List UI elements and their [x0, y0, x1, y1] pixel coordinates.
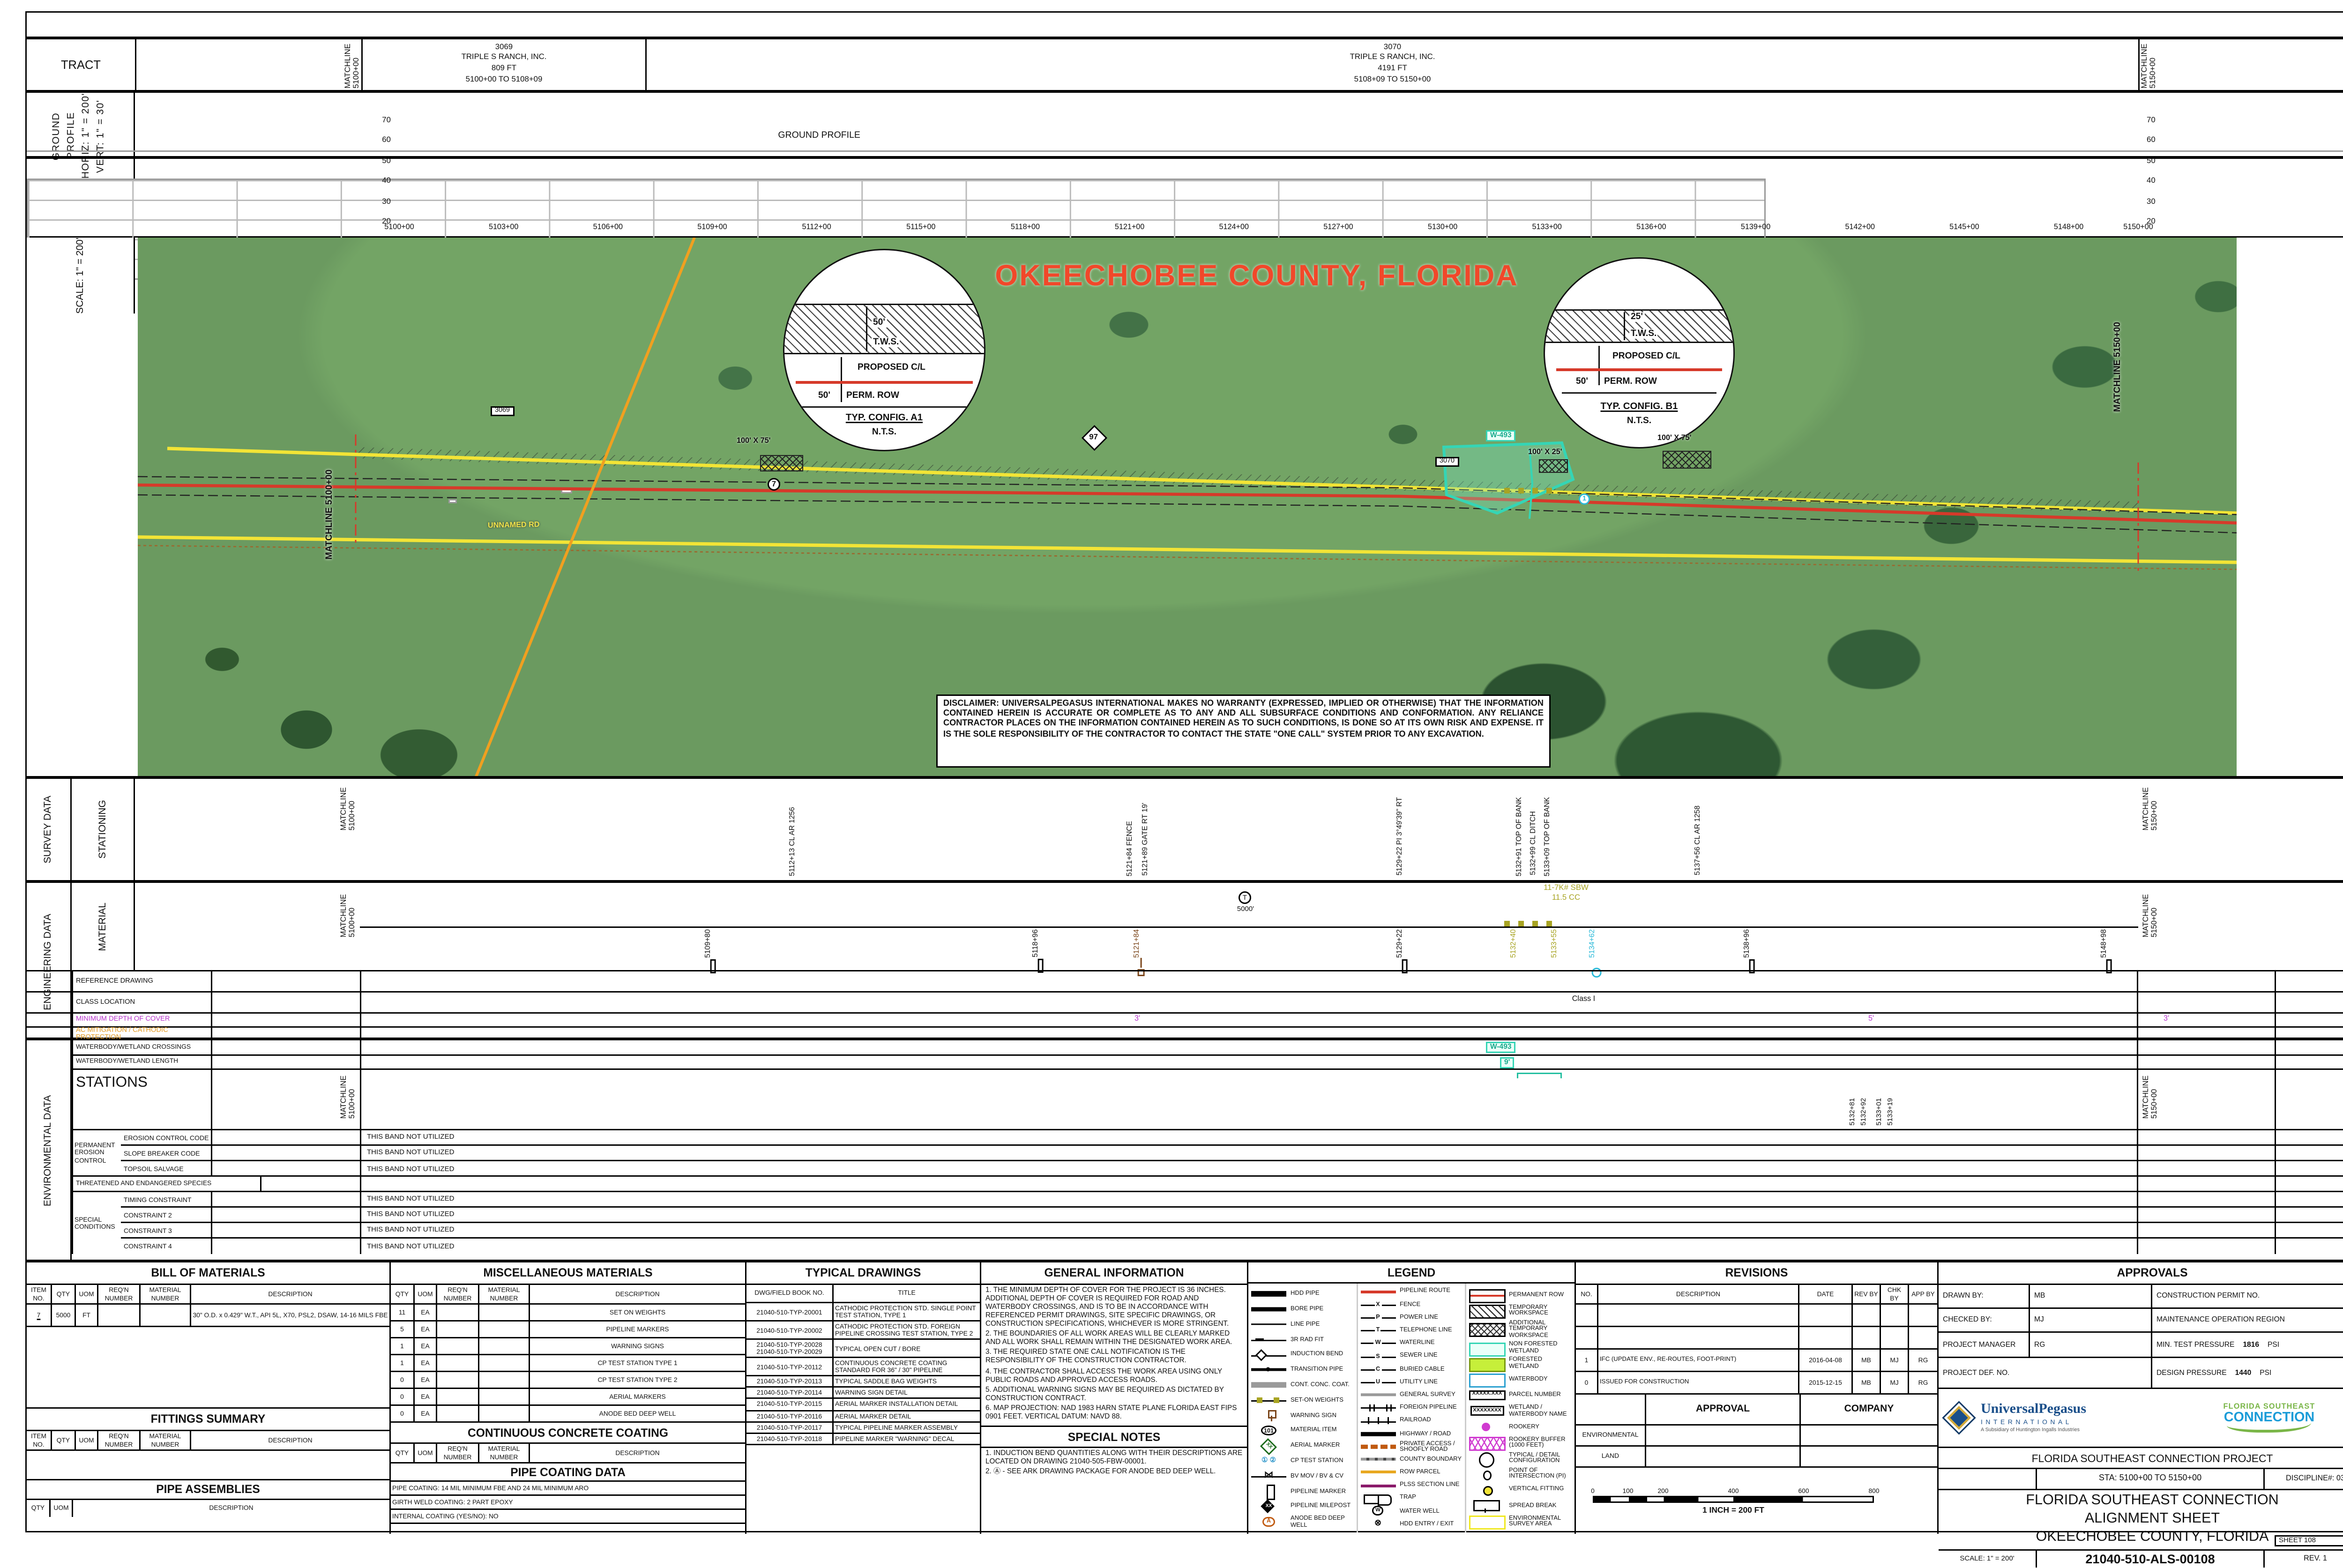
- station-tick: 5109+00: [697, 224, 727, 232]
- cp-test-station-icon: ① ②: [1250, 1455, 1288, 1467]
- y-tick: 40: [2147, 178, 2156, 186]
- atws-patch: [1663, 451, 1711, 468]
- material-station-label: 5138+96: [1745, 929, 1752, 958]
- legend-item: INDUCTION BEND: [1250, 1348, 1355, 1361]
- wetland-crossings-row: WATERBODY/WETLAND CROSSINGS W-493: [72, 1040, 2343, 1056]
- concrete-coating-title: CONTINUOUS CONCRETE COATING: [391, 1423, 745, 1444]
- note: 3. THE REQUIRED STATE ONE CALL NOTIFICAT…: [985, 1350, 1243, 1366]
- dimension-line: [841, 357, 842, 402]
- set-on-weights-marks: [1504, 921, 1558, 926]
- warning-sign-icon: [1250, 1409, 1288, 1422]
- atws-patch: [761, 455, 803, 471]
- scale-bar-graphic: [1593, 1496, 1874, 1503]
- approvals-title: APPROVALS: [1939, 1262, 2343, 1285]
- bv-valve-icon: ⋈: [1250, 1470, 1288, 1483]
- parcel-number-icon: XXXXX.XXX: [1468, 1389, 1506, 1401]
- material-item-7-marker: 7: [768, 478, 780, 491]
- environmental-approval-row: ENVIRONMENTAL: [1576, 1426, 1646, 1445]
- profile-x-axis: 5100+005103+005106+005109+005112+005115+…: [399, 224, 2138, 238]
- fence-line-icon: X: [1359, 1298, 1397, 1311]
- tract-number: 3069: [363, 44, 645, 54]
- legend-item: TEMPORARY WORKSPACE: [1468, 1304, 1573, 1316]
- station-tick: 5142+00: [1845, 224, 1875, 232]
- miscellaneous-materials: MISCELLANEOUS MATERIALS QTY UOM REQ'N NU…: [391, 1262, 746, 1534]
- power-line-icon: P: [1359, 1311, 1397, 1324]
- material-item-icon: 101: [1250, 1424, 1288, 1437]
- environmental-data-band: ENVIRONMENTAL DATA WATERBODY/WETLAND CRO…: [27, 1040, 2343, 1262]
- pipe-coating-row: INTERNAL COATING (YES/NO): NO: [391, 1510, 745, 1524]
- typical-drawing-row: 21040-510-TYP-20112 CONTINUOUS CONCRETE …: [746, 1359, 980, 1377]
- tract-band: TRACT 3069 TRIPLE S RANCH, INC. 809 FT 5…: [27, 37, 2343, 93]
- legend-item: PRIVATE ACCESS / SHOOFLY ROAD: [1359, 1440, 1464, 1453]
- misc-row: 0 EA ANODE BED DEEP WELL: [391, 1406, 745, 1423]
- pipeline-milepost-icon: XX: [1250, 1501, 1288, 1513]
- rad-fit-icon: [1250, 1333, 1288, 1346]
- station-tick: 5103+00: [489, 224, 518, 232]
- y-tick: 30: [382, 198, 391, 206]
- legend-item: PIPELINE ROUTE: [1359, 1285, 1464, 1298]
- material-station-label: 5121+84: [1134, 929, 1142, 958]
- depth-of-cover-value: 3': [1134, 1015, 1140, 1023]
- add-temp-ws-icon: [1468, 1322, 1506, 1335]
- induction-bend-icon: [1250, 1348, 1288, 1361]
- row-parcel-line: [475, 238, 694, 779]
- material-station-label: 5118+96: [1033, 929, 1041, 957]
- band-note: THIS BAND NOT UTILIZED: [361, 1210, 2137, 1219]
- logo-swoosh-icon: [2227, 1423, 2311, 1433]
- misc-title: MISCELLANEOUS MATERIALS: [391, 1262, 745, 1285]
- wetland-length-row: WATERBODY/WETLAND LENGTH 9': [72, 1056, 2343, 1070]
- band-note: THIS BAND NOT UTILIZED: [361, 1149, 2137, 1157]
- environmental-data-side-label: ENVIRONMENTAL DATA: [27, 1040, 72, 1262]
- telephone-crossing-marker: T: [1239, 891, 1251, 904]
- ground-profile-inline-label: GROUND PROFILE: [775, 130, 863, 140]
- typical-drawing-row: 21040-510-TYP-20115 AERIAL MARKER INSTAL…: [746, 1399, 980, 1411]
- survey-station-label: 5121+89 GATE RT 19': [1143, 803, 1150, 876]
- survey-data-band: SURVEY DATA STATIONING MATCHLINE5100+00 …: [27, 779, 2343, 883]
- railroad-icon: [1359, 1414, 1397, 1427]
- survey-station-label: 5121+84 FENCE: [1127, 821, 1135, 876]
- env-station-mark: 5132+81: [1849, 1098, 1857, 1126]
- legend-item: TRANSITION PIPE: [1250, 1364, 1355, 1376]
- tws-label: T.W.S.: [1629, 329, 1658, 339]
- typical-drawing-row: 21040-510-TYP-20117 TYPICAL PIPELINE MAR…: [746, 1422, 980, 1434]
- legend-item: S SEWER LINE: [1359, 1350, 1464, 1362]
- water-well-icon: W: [1359, 1505, 1397, 1517]
- poi-icon: [1468, 1468, 1506, 1480]
- bom-row: 7 5000 FT 30" O.D. x 0.429" W.T., API 5L…: [27, 1305, 389, 1327]
- legend-item: 101 MATERIAL ITEM: [1250, 1424, 1355, 1437]
- station-tick: 5121+00: [1115, 224, 1144, 232]
- station-tick: 5148+00: [2054, 224, 2083, 232]
- tract-length: 809 FT: [363, 65, 645, 75]
- tract-range: 5100+00 TO 5108+09: [363, 75, 645, 86]
- erosion-control-group: PERMANENT EROSION CONTROL EROSION CONTRO…: [72, 1130, 2343, 1177]
- legend-item: BORE PIPE: [1250, 1303, 1355, 1315]
- wetland-extent-bracket: [1517, 1073, 1562, 1078]
- legend-item: XX PIPELINE MILEPOST: [1250, 1501, 1355, 1513]
- parcel-number-label: 3069: [491, 406, 514, 416]
- typical-drawing-row: 21040-510-TYP-20001 CATHODIC PROTECTION …: [746, 1303, 980, 1322]
- band-note: THIS BAND NOT UTILIZED: [361, 1195, 2137, 1203]
- depth-of-cover-value: 5': [1868, 1015, 1874, 1023]
- special-notes-title: SPECIAL NOTES: [981, 1427, 1247, 1448]
- typ-config-b1-callout: 25' T.W.S. PROPOSED C/L 50' PERM. ROW TY…: [1544, 257, 1735, 448]
- row-dimension: 50': [818, 391, 830, 401]
- pipe-assemblies-title: PIPE ASSEMBLIES: [27, 1480, 389, 1500]
- typical-drawing-row: 21040-510-TYP-20116 AERIAL MARKER DETAIL: [746, 1411, 980, 1422]
- env-band-row: TIMING CONSTRAINT THIS BAND NOT UTILIZED: [121, 1192, 2343, 1208]
- material-station-label: 5134+62: [1590, 929, 1597, 958]
- legend-item: ⊗ HDD ENTRY / EXIT: [1359, 1518, 1464, 1531]
- legend-item: PERMANENT ROW: [1468, 1288, 1573, 1301]
- perm-row-line: [801, 406, 967, 408]
- scale-bar: 0100200400600800 1 INCH = 200 FT: [1593, 1487, 1874, 1516]
- anode-bed-icon: A: [1250, 1516, 1288, 1528]
- matchline-left-label: MATCHLINE5100+00: [344, 44, 363, 89]
- tract-cell-3070: 3070 TRIPLE S RANCH, INC. 4191 FT 5108+0…: [645, 39, 2138, 90]
- legend-item: TYPICAL / DETAIL CONFIGURATION: [1468, 1452, 1573, 1464]
- special-conditions-group: SPECIAL CONDITIONS TIMING CONSTRAINT THI…: [72, 1192, 2343, 1254]
- typical-drawing-row: 21040-510-TYP-20002 CATHODIC PROTECTION …: [746, 1322, 980, 1340]
- bottom-tables: BILL OF MATERIALS ITEM NO. QTY UOM REQ'N…: [27, 1262, 2343, 1534]
- aerial-marker-icon: XX: [1250, 1440, 1288, 1452]
- wetland-name-icon: XXXXXXXX: [1468, 1404, 1506, 1417]
- nts-label: N.T.S.: [784, 427, 984, 437]
- design-pressure: DESIGN PRESSURE1440PSI: [2152, 1358, 2343, 1388]
- legend-item: FORESTED WETLAND: [1468, 1357, 1573, 1370]
- alignment-sheet: TRACT 3069 TRIPLE S RANCH, INC. 809 FT 5…: [0, 0, 2343, 1547]
- general-survey-icon: [1359, 1389, 1397, 1401]
- legend-item: ① ② CP TEST STATION: [1250, 1455, 1355, 1467]
- bill-of-materials: BILL OF MATERIALS ITEM NO. QTY UOM REQ'N…: [27, 1262, 391, 1534]
- matchline-right-label: MATCHLINE5150+00: [2141, 44, 2159, 89]
- env-band-row: CONSTRAINT 3 THIS BAND NOT UTILIZED: [121, 1223, 2343, 1239]
- tws-dimension: 50': [872, 318, 887, 328]
- sheet-number: SHEET 108: [2275, 1535, 2343, 1546]
- typical-drawing-row: 21040-510-TYP-20118 PIPELINE MARKER "WAR…: [746, 1434, 980, 1445]
- buried-cable-icon: C: [1359, 1363, 1397, 1375]
- legend-title: LEGEND: [1248, 1262, 1574, 1284]
- dimension-line: [1624, 312, 1625, 340]
- legend-item: X FENCE: [1359, 1298, 1464, 1311]
- wetland-id-label: W-493: [1486, 430, 1516, 441]
- material-band: MATERIAL 11-7K# SBW 11.5 CC T 5000' MATC…: [27, 883, 2343, 970]
- env-band-row: TOPSOIL SALVAGE THIS BAND NOT UTILIZED: [121, 1161, 2343, 1177]
- legend-item: POINT OF INTERSECTION (PI): [1468, 1468, 1573, 1480]
- dimension-line: [866, 306, 867, 351]
- legend-item: T TELEPHONE LINE: [1359, 1324, 1464, 1337]
- nts-label: N.T.S.: [1545, 416, 1733, 426]
- env-survey-icon: [1468, 1515, 1506, 1528]
- revision-row: 0 ISSUED FOR CONSTRUCTION 2015-12-15 MB …: [1576, 1372, 1937, 1395]
- f-wetland-icon: [1468, 1357, 1506, 1370]
- approval-header: APPROVAL: [1646, 1395, 1801, 1424]
- sewer-line-icon: S: [1359, 1350, 1397, 1362]
- general-information-title: GENERAL INFORMATION: [981, 1262, 1247, 1285]
- config-name: TYP. CONFIG. B1: [1545, 402, 1733, 412]
- legend-item: WARNING SIGN: [1250, 1409, 1355, 1422]
- scale-tick: 800: [1868, 1487, 1879, 1494]
- material-station-label: 5148+98: [2102, 929, 2109, 958]
- legend-item: SET-ON WEIGHTS: [1250, 1394, 1355, 1407]
- pipe-coating-data-title: PIPE COATING DATA: [391, 1463, 745, 1482]
- station-tick: 5136+00: [1636, 224, 1666, 232]
- station-tick: 5139+00: [1741, 224, 1770, 232]
- tract-length: 4191 FT: [647, 65, 2138, 75]
- perm-row-label: PERM. ROW: [1604, 377, 1657, 387]
- station-tick: 5145+00: [1949, 224, 1979, 232]
- env-band-row: EROSION CONTROL CODE THIS BAND NOT UTILI…: [121, 1130, 2343, 1146]
- scale-tick: 0: [1591, 1487, 1595, 1494]
- hdd-pipe-icon: [1250, 1287, 1288, 1300]
- set-on-weights-icon: [1250, 1394, 1288, 1407]
- min-test-pressure: MIN. TEST PRESSURE1816PSI: [2152, 1333, 2343, 1357]
- misc-row: 1 EA CP TEST STATION TYPE 1: [391, 1355, 745, 1372]
- env-band-row: CONSTRAINT 4 THIS BAND NOT UTILIZED: [121, 1239, 2343, 1254]
- typ-detail-icon: [1468, 1452, 1506, 1464]
- misc-row: 1 EA WARNING SIGNS: [391, 1338, 745, 1355]
- legend-item: CONT. CONC. COAT.: [1250, 1379, 1355, 1391]
- scale-tick: 400: [1728, 1487, 1739, 1494]
- scale-bar-label: 1 INCH = 200 FT: [1593, 1507, 1874, 1516]
- pipeline-route-icon: [1359, 1285, 1397, 1298]
- note: 5. ADDITIONAL WARNING SIGNS MAY BE REQUI…: [985, 1388, 1243, 1404]
- legend-item: C BURIED CABLE: [1359, 1363, 1464, 1375]
- legend-item: ROOKERY: [1468, 1420, 1573, 1433]
- fittings-summary-title: FITTINGS SUMMARY: [27, 1409, 389, 1431]
- survey-station-label: 5137+56 CL AR 1258: [1695, 806, 1703, 876]
- temp-ws-icon: [1468, 1304, 1506, 1316]
- project-name: FLORIDA SOUTHEAST CONNECTION PROJECT: [1939, 1448, 2343, 1469]
- approvals-title-block: APPROVALS DRAWN BY:MB CONSTRUCTION PERMI…: [1939, 1262, 2343, 1534]
- legend-item: WATERBODY: [1468, 1373, 1573, 1386]
- highway-road-icon: [1359, 1427, 1397, 1440]
- water-line-icon: W: [1359, 1337, 1397, 1350]
- perm-row-label: PERM. ROW: [846, 391, 899, 401]
- private-access-icon: [1359, 1440, 1397, 1453]
- utility-line-icon: U: [1359, 1376, 1397, 1389]
- survey-station-label: 5133+09 TOP OF BANK: [1545, 797, 1552, 876]
- class-location-row: CLASS LOCATION Class I: [27, 991, 2343, 1012]
- y-tick: 30: [2147, 198, 2156, 206]
- env-station-mark: 5133+19: [1887, 1098, 1895, 1126]
- trap-icon: [1359, 1492, 1397, 1505]
- env-stations-row: STATIONS 5132+815132+925133+015133+19 MA…: [72, 1070, 2343, 1130]
- county-boundary-icon: [1359, 1453, 1397, 1466]
- bore-pipe-icon: [1250, 1303, 1288, 1315]
- note: 1. INDUCTION BEND QUANTITIES ALONG WITH …: [985, 1451, 1243, 1467]
- revision-number: REV. 1: [2265, 1551, 2343, 1568]
- y-tick: 70: [382, 117, 391, 125]
- vert-fitting-icon: [1468, 1483, 1506, 1496]
- legend-item: NON FORESTED WETLAND: [1468, 1341, 1573, 1354]
- legend-item: ⋈ BV MOV / BV & CV: [1250, 1470, 1355, 1483]
- ground-profile-line: [27, 157, 2343, 158]
- min-depth-of-cover-row: MINIMUM DEPTH OF COVER 3'5'3': [27, 1012, 2343, 1026]
- legend-item: U UTILITY LINE: [1359, 1376, 1464, 1389]
- station-tick: 5130+00: [1428, 224, 1457, 232]
- atws-patch: [1539, 460, 1567, 472]
- material-baseline: [360, 926, 2138, 928]
- wetland-length-value: 9': [1500, 1057, 1514, 1068]
- misc-row: 5 EA PIPELINE MARKERS: [391, 1322, 745, 1338]
- survey-line-upper: [167, 448, 2237, 513]
- road-name-label: UNNAMED RD: [488, 521, 540, 530]
- proposed-cl-line: [1556, 368, 1722, 371]
- material-station-label: 5129+22: [1397, 929, 1405, 958]
- conc-coat-icon: [1250, 1379, 1288, 1391]
- class-location-value: Class I: [694, 995, 2343, 1004]
- transition-pipe-icon: [1250, 1364, 1288, 1376]
- bom-title: BILL OF MATERIALS: [27, 1262, 389, 1285]
- reference-drawing-row: REFERENCE DRAWING: [27, 970, 2343, 991]
- matchline-left-label: MATCHLINE5100+00: [342, 1075, 358, 1119]
- survey-station-label: 5132+99 CL DITCH: [1531, 812, 1538, 876]
- construction-permit: CONSTRUCTION PERMIT NO.: [2152, 1285, 2343, 1307]
- misc-row: 0 EA AERIAL MARKERS: [391, 1389, 745, 1406]
- legend-item: RAILROAD: [1359, 1414, 1464, 1427]
- pipe-coating-row: PIPE COATING: 14 MIL MINIMUM FBE AND 24 …: [391, 1482, 745, 1496]
- typical-drawing-row: 21040-510-TYP-20113 TYPICAL SADDLE BAG W…: [746, 1377, 980, 1388]
- station-tick: 5150+00: [2123, 224, 2153, 232]
- drawn-by-value: MB: [2029, 1285, 2151, 1307]
- env-band-row: SLOPE BREAKER CODE THIS BAND NOT UTILIZE…: [121, 1146, 2343, 1161]
- profile-y-axis-right: 706050403020: [2141, 121, 2178, 222]
- env-station-mark: 5133+01: [1875, 1098, 1884, 1126]
- env-station-mark: 5132+92: [1860, 1098, 1868, 1126]
- workspace-dim-label: 100' X 75': [1657, 434, 1691, 443]
- legend-item: ROW PARCEL: [1359, 1466, 1464, 1478]
- band-note: THIS BAND NOT UTILIZED: [361, 1165, 2137, 1173]
- ground-profile-band: GROUND PROFILE HORIZ: 1" = 200' VERT: 1"…: [27, 93, 2343, 238]
- material-station-label: 5133+55: [1552, 929, 1560, 958]
- aerial-map-band: SCALE: 1" = 200' OKEECHOBEE COUNTY, FLOR…: [27, 238, 2343, 779]
- florida-southeast-connection-logo: FLORIDA SOUTHEAST CONNECTION: [2172, 1389, 2343, 1447]
- general-information: GENERAL INFORMATION 1. THE MINIMUM DEPTH…: [981, 1262, 1248, 1534]
- rookery-buffer-icon: [1468, 1436, 1506, 1449]
- scale-tick: 100: [1622, 1487, 1633, 1494]
- proposed-cl-label: PROPOSED C/L: [858, 363, 925, 373]
- telephone-line-icon: T: [1359, 1324, 1397, 1337]
- perm-row-line: [1562, 392, 1716, 394]
- revision-row: [1576, 1305, 1937, 1327]
- material-station-label: 5132+40: [1511, 929, 1519, 958]
- nf-wetland-icon: [1468, 1341, 1506, 1354]
- survey-station-label: 5129+22 PI 3°49'39" RT: [1397, 798, 1405, 876]
- depth-of-cover-value: 3': [2164, 1015, 2169, 1023]
- legend-item: W WATER WELL: [1359, 1505, 1464, 1517]
- legend-item: TRAP: [1359, 1492, 1464, 1505]
- row-dimension: 50': [1576, 377, 1588, 387]
- note: 2. Ⓐ - SEE ARK DRAWING PACKAGE FOR ANODE…: [985, 1470, 1243, 1478]
- workspace-dim-label: 100' X 75': [737, 437, 770, 446]
- legend-item: P POWER LINE: [1359, 1311, 1464, 1324]
- ground-profile-side-label: GROUND PROFILE HORIZ: 1" = 200' VERT: 1"…: [27, 93, 135, 179]
- legend-item: VERTICAL FITTING: [1468, 1483, 1573, 1496]
- station-tick: 5124+00: [1219, 224, 1249, 232]
- set-on-weights-marks: [1504, 488, 1552, 493]
- env-band-row: CONSTRAINT 2 THIS BAND NOT UTILIZED: [121, 1208, 2343, 1223]
- y-tick: 60: [2147, 137, 2156, 145]
- tract-owner: TRIPLE S RANCH, INC.: [363, 54, 645, 65]
- hdd-entry-icon: ⊗: [1359, 1518, 1397, 1531]
- pipeline-marker-icon: [1250, 1485, 1288, 1498]
- cp-test-station-1-marker: 1: [1579, 493, 1590, 505]
- typical-drawings-title: TYPICAL DRAWINGS: [746, 1262, 980, 1285]
- legend-item: FOREIGN PIPELINE: [1359, 1402, 1464, 1414]
- typical-drawings: TYPICAL DRAWINGS DWG/FIELD BOOK NO. TITL…: [746, 1262, 981, 1534]
- pipe-coating-row: GIRTH WELD COATING: 2 PART EPOXY: [391, 1496, 745, 1510]
- legend-item: A ANODE BED DEEP WELL: [1250, 1516, 1355, 1528]
- legend-item: SPREAD BREAK: [1468, 1499, 1573, 1512]
- checked-by-value: MJ: [2029, 1309, 2151, 1331]
- sheet-frame: TRACT 3069 TRIPLE S RANCH, INC. 809 FT 5…: [25, 11, 2343, 1532]
- tract-number: 3070: [647, 44, 2138, 54]
- tract-range: 5108+09 TO 5150+00: [647, 75, 2138, 86]
- y-tick: 40: [382, 178, 391, 186]
- revision-row: [1576, 1327, 1937, 1350]
- revision-row: 1 IFC (UPDATE ENV., RE-ROUTES, FOOT-PRIN…: [1576, 1350, 1937, 1372]
- land-approval-row: LAND: [1576, 1447, 1646, 1466]
- station-tick: 5127+00: [1323, 224, 1353, 232]
- legend-item: ENVIRONMENTAL SURVEY AREA: [1468, 1515, 1573, 1528]
- sbw-note: 11-7K# SBW 11.5 CC: [1489, 884, 1643, 903]
- legend-item: 3R RAD FIT: [1250, 1333, 1355, 1346]
- station-tick: 5118+00: [1011, 224, 1040, 232]
- universalpegasus-diamond-icon: [1942, 1401, 1976, 1434]
- scale-tick: 200: [1657, 1487, 1668, 1494]
- band-note: THIS BAND NOT UTILIZED: [361, 1242, 2137, 1251]
- tract-row-label: TRACT: [27, 39, 135, 90]
- waterbody-icon: [1468, 1373, 1506, 1386]
- typical-drawing-row: 21040-510-TYP-20028 21040-510-TYP-20029 …: [746, 1340, 980, 1359]
- survey-station-label: 5112+13 CL AR 1256: [790, 806, 798, 876]
- proposed-cl-label: PROPOSED C/L: [1612, 351, 1680, 361]
- station-tick: 5100+00: [384, 224, 414, 232]
- map-matchline-right: MATCHLINE 5150+00: [2113, 322, 2123, 412]
- scale-tick: 600: [1798, 1487, 1809, 1494]
- county-title: OKEECHOBEE COUNTY, FLORIDA: [955, 260, 1559, 294]
- material-station-label: 5109+80: [706, 929, 713, 958]
- tws-dimension: 25': [1629, 312, 1644, 322]
- legend: LEGEND HDD PIPE BORE PIPE: [1248, 1262, 1576, 1534]
- survey-data-side-label: SURVEY DATA: [27, 779, 72, 880]
- note: 6. MAP PROJECTION: NAD 1983 HARN STATE P…: [985, 1406, 1243, 1423]
- row-parcel-icon: [1359, 1466, 1397, 1478]
- wetland-id-value: W-493: [1486, 1042, 1516, 1053]
- note: 1. THE MINIMUM DEPTH OF COVER FOR THE PR…: [985, 1288, 1243, 1329]
- universalpegasus-logo: UniversalPegasus INTERNATIONAL A Subsidi…: [1939, 1389, 2172, 1447]
- y-tick: 60: [382, 137, 391, 145]
- foreign-pipeline-icon: [1359, 1402, 1397, 1414]
- matchline-left-label: MATCHLINE5100+00: [342, 787, 358, 830]
- misc-row: 11 EA SET ON WEIGHTS: [391, 1305, 745, 1322]
- misc-row: 0 EA CP TEST STATION TYPE 2: [391, 1372, 745, 1389]
- legend-item: COUNTY BOUNDARY: [1359, 1453, 1464, 1466]
- special-notes: 1. INDUCTION BEND QUANTITIES ALONG WITH …: [981, 1448, 1247, 1483]
- survey-line-lower: [138, 537, 2237, 562]
- tws-label: T.W.S.: [872, 337, 900, 347]
- spread-break-icon: [1468, 1499, 1506, 1512]
- discipline-number: DISCIPLINE#: 03: [2265, 1469, 2343, 1489]
- rookery-icon: [1468, 1420, 1506, 1433]
- proposed-cl-line: [796, 381, 973, 383]
- te-species-row: THREATENED AND ENDANGERED SPECIES: [72, 1177, 2343, 1192]
- disclaimer-box: DISCLAIMER: UNIVERSALPEGASUS INTERNATION…: [936, 694, 1551, 768]
- station-tick: 5115+00: [906, 224, 935, 232]
- typical-drawing-row: 21040-510-TYP-20114 WARNING SIGN DETAIL: [746, 1388, 980, 1399]
